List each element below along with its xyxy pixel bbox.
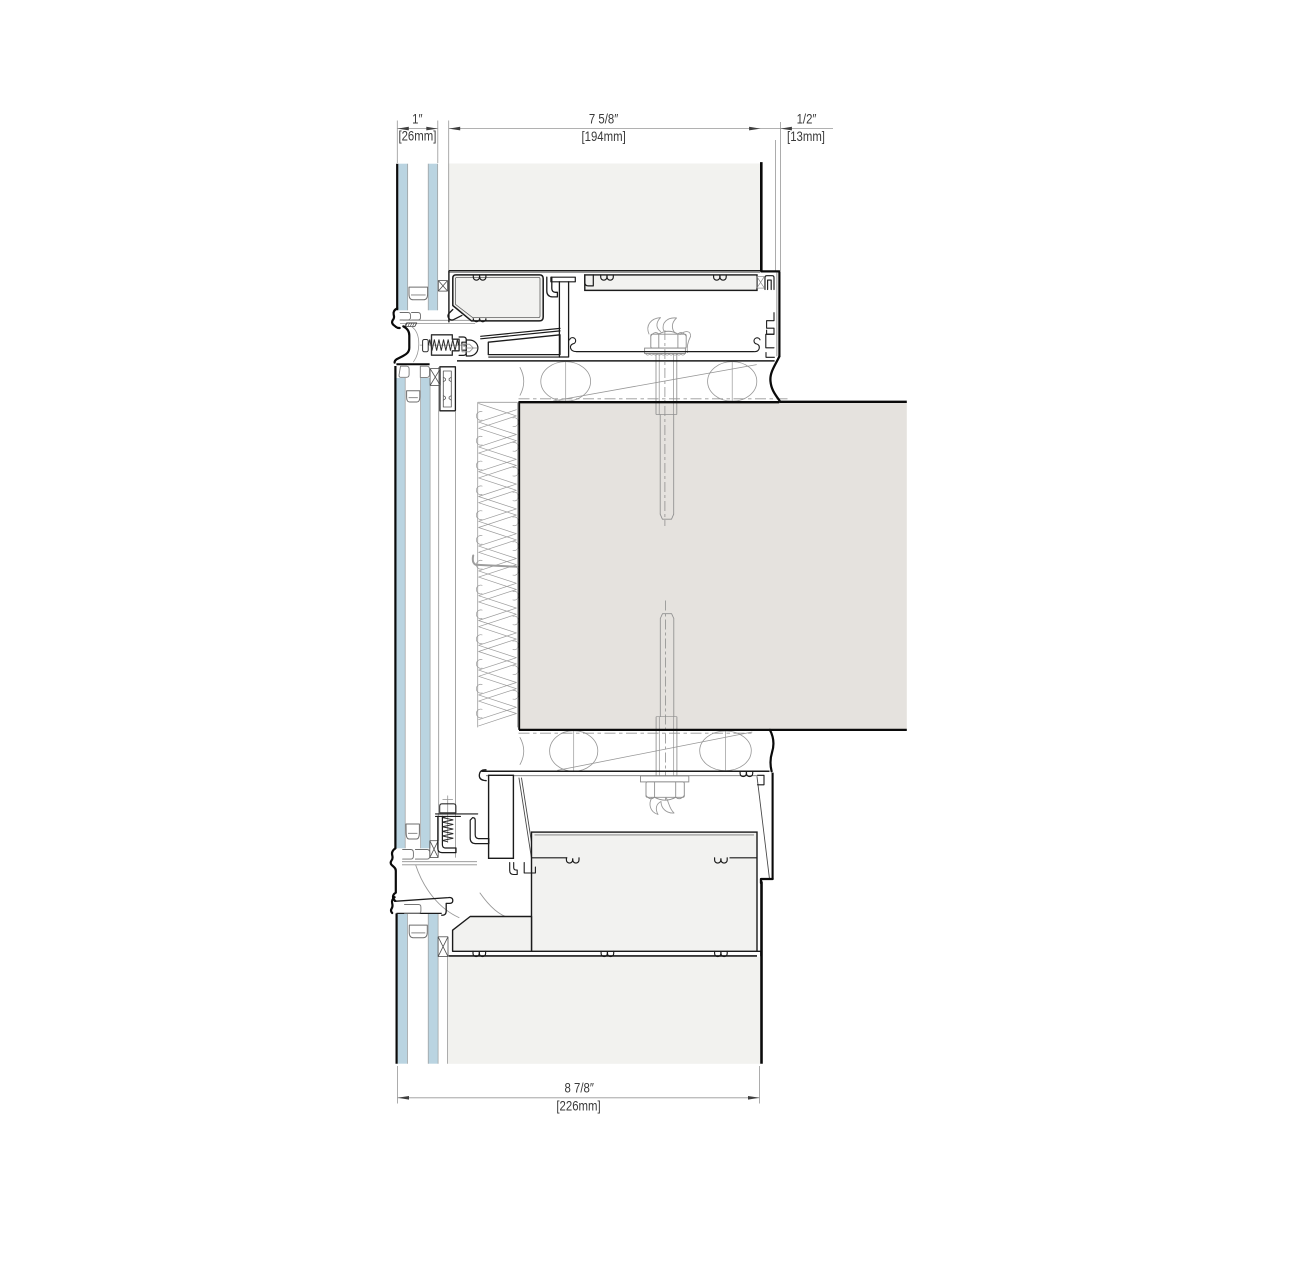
svg-text:8 7/8″: 8 7/8″ — [565, 1081, 595, 1096]
svg-text:1/2″: 1/2″ — [797, 112, 817, 127]
svg-text:[13mm]: [13mm] — [787, 129, 825, 144]
svg-text:[26mm]: [26mm] — [398, 129, 436, 144]
svg-text:[226mm]: [226mm] — [556, 1099, 600, 1114]
svg-text:1″: 1″ — [412, 112, 423, 127]
svg-text:[194mm]: [194mm] — [581, 129, 625, 144]
svg-text:7 5/8″: 7 5/8″ — [589, 112, 619, 127]
